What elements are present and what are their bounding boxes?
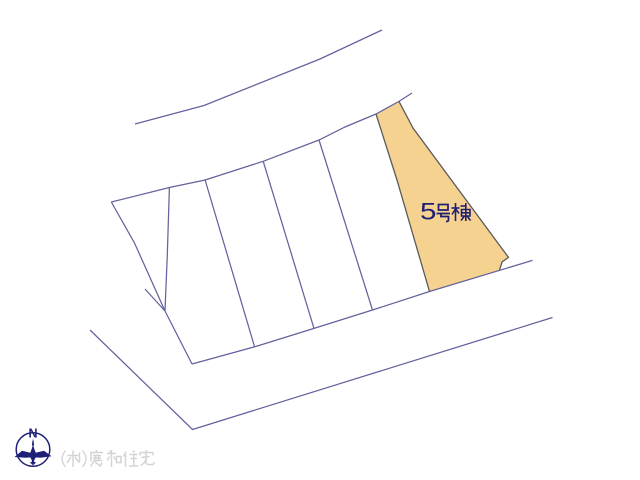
svg-text:5: 5 xyxy=(420,199,437,226)
svg-text:N: N xyxy=(28,427,37,441)
